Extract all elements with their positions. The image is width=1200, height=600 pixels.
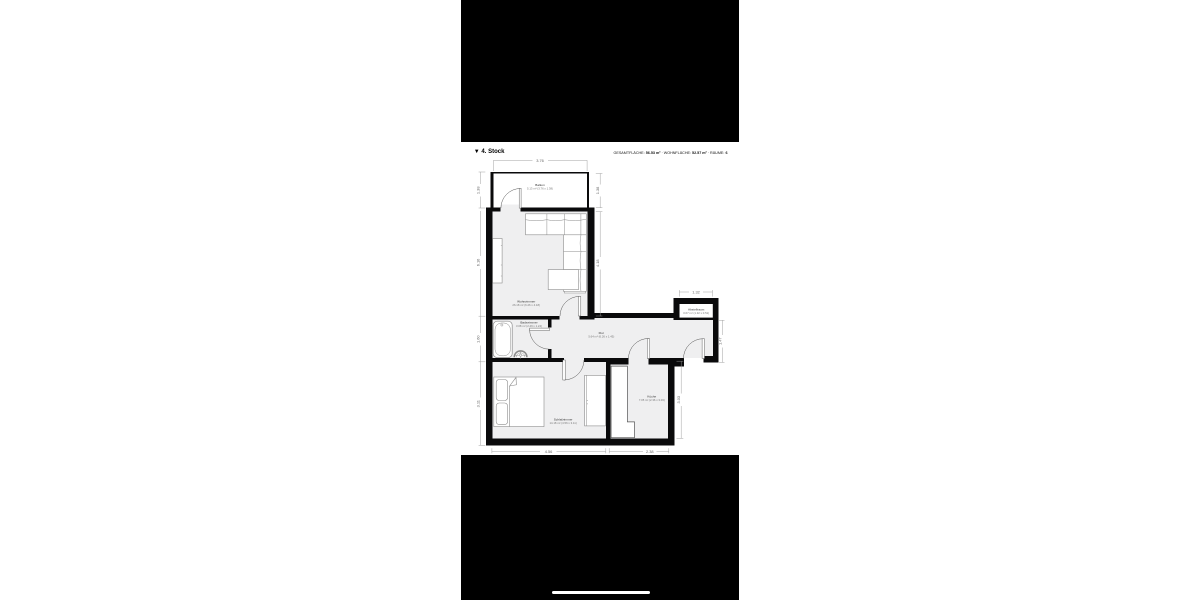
svg-text:3.11: 3.11: [475, 400, 480, 407]
svg-text:5.13 m² (3.76 x 1.38): 5.13 m² (3.76 x 1.38): [527, 187, 553, 191]
svg-text:1.47: 1.47: [717, 337, 722, 345]
svg-text:3.76: 3.76: [536, 158, 544, 163]
svg-text:7.05 m² (2.36 x 3.03): 7.05 m² (2.36 x 3.03): [639, 398, 665, 402]
svg-text:1.60: 1.60: [475, 335, 480, 343]
svg-text:1.32: 1.32: [692, 289, 700, 294]
svg-text:2.38: 2.38: [646, 449, 654, 454]
svg-text:0.67 m² (1.32 x 0.51): 0.67 m² (1.32 x 0.51): [683, 311, 709, 315]
svg-text:26.18 m² (6.26 x 4.18): 26.18 m² (6.26 x 4.18): [512, 303, 540, 307]
svg-text:14.18 m² (4.56 x 3.11): 14.18 m² (4.56 x 3.11): [549, 421, 576, 425]
svg-text:4.18: 4.18: [595, 259, 600, 267]
svg-text:3.08 m² (2.49 x 1.24): 3.08 m² (2.49 x 1.24): [516, 324, 542, 328]
svg-text:5.64 m² (6.26 x 1.45): 5.64 m² (6.26 x 1.45): [588, 335, 614, 339]
svg-text:1.38: 1.38: [595, 187, 600, 195]
svg-text:1.38: 1.38: [475, 187, 480, 195]
svg-text:4.56: 4.56: [545, 449, 553, 454]
svg-text:3.03: 3.03: [676, 396, 681, 404]
svg-text:6.16: 6.16: [475, 259, 480, 267]
